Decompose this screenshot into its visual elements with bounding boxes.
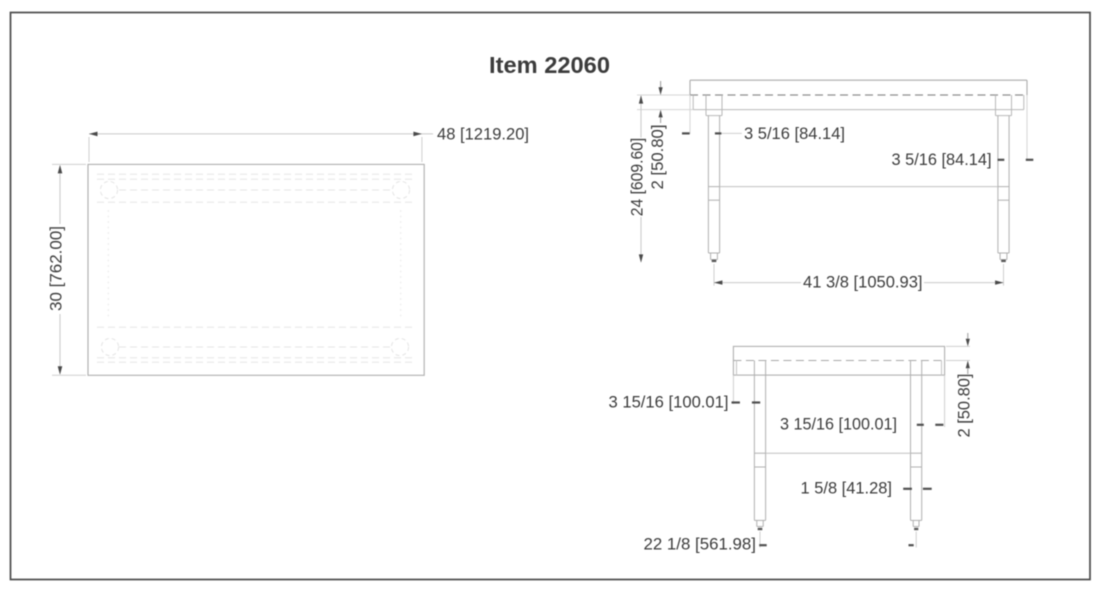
svg-text:3 5/16 [84.14]: 3 5/16 [84.14] [744,125,845,143]
svg-text:2 [50.80]: 2 [50.80] [649,125,667,190]
svg-text:Item 22060: Item 22060 [489,52,610,78]
svg-text:22 1/8 [561.98]: 22 1/8 [561.98] [644,536,757,554]
svg-text:1 5/8 [41.28]: 1 5/8 [41.28] [801,480,893,498]
svg-text:30 [762.00]: 30 [762.00] [48,226,66,311]
svg-text:2 [50.80]: 2 [50.80] [956,374,974,438]
svg-text:3 5/16 [84.14]: 3 5/16 [84.14] [892,151,992,169]
svg-text:24 [609.60]: 24 [609.60] [629,138,647,217]
svg-text:3 15/16 [100.01]: 3 15/16 [100.01] [609,394,729,412]
svg-text:41 3/8 [1050.93]: 41 3/8 [1050.93] [803,273,923,291]
svg-text:48 [1219.20]: 48 [1219.20] [437,126,529,144]
svg-text:3 15/16 [100.01]: 3 15/16 [100.01] [780,416,897,434]
